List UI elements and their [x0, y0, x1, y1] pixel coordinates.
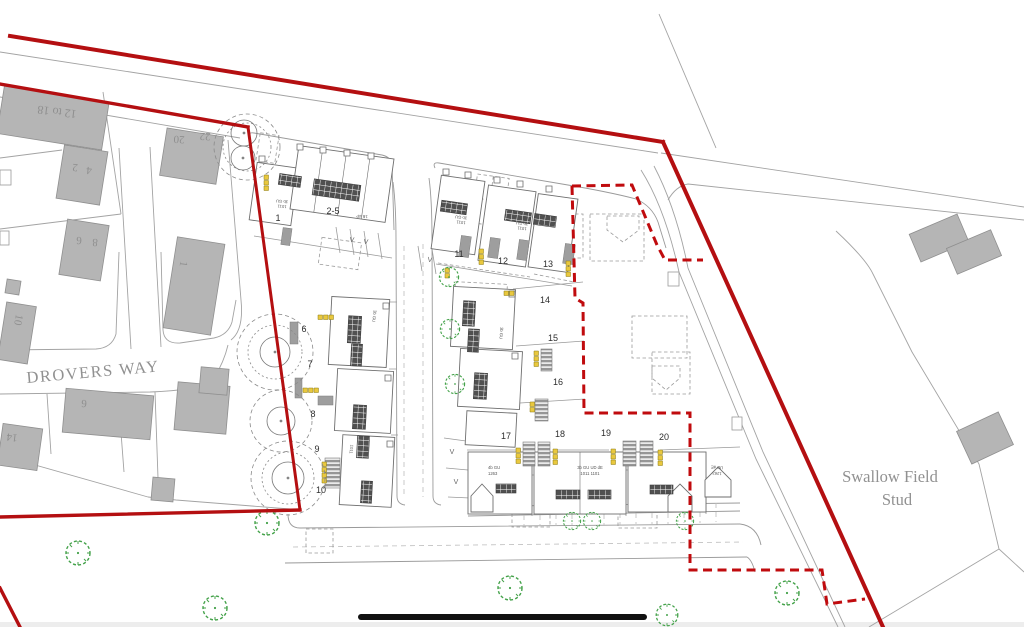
unit-type-note-20: UD dE: [711, 465, 724, 471]
plot-label-11: 11: [454, 249, 463, 259]
plot-label-19: 19: [601, 428, 611, 438]
house-plot-14: [450, 286, 515, 349]
plot-label-6: 6: [301, 324, 306, 334]
plot-label-1: 1: [275, 213, 280, 223]
building-14: [0, 423, 43, 470]
unit-ref-note-20: 1263: [712, 471, 722, 477]
plot-label-15: 15: [548, 333, 558, 343]
plot-label-8: 8: [310, 409, 315, 419]
unit-ref-note-18-19: 1011 1101: [580, 471, 600, 476]
unit-type-note-18-19: 3b GU UD dE: [577, 465, 603, 470]
plot-label-14: 14: [540, 295, 550, 305]
existing-number-2: 2: [72, 161, 79, 173]
unit-note-vertical: 1011: [348, 444, 354, 454]
plot-label-18: 18: [555, 429, 565, 439]
visitor-space-label: V: [450, 449, 455, 456]
plot-label-9: 9: [314, 444, 319, 454]
plot-label-10: 10: [316, 485, 326, 495]
building-22-20: [160, 128, 224, 184]
site-plan-drawing: DROVERS WAY Swallow Field Stud 12 to 18 …: [0, 0, 1024, 627]
existing-number-22: 22: [199, 130, 211, 143]
site-plan-svg: DROVERS WAY Swallow Field Stud 12 to 18 …: [0, 0, 1024, 627]
plot-label-7: 7: [307, 359, 312, 369]
unit-ref-note: 1011: [456, 219, 466, 225]
plot-label-16: 16: [553, 377, 563, 387]
unit-type-note: 3b GU: [276, 199, 288, 205]
unit-ref-note: 1011: [517, 225, 527, 231]
visitor-space-label: V: [454, 479, 459, 486]
plot-label-12: 12: [498, 256, 508, 266]
existing-number-20: 20: [173, 133, 185, 146]
area-label-stud: Stud: [882, 490, 913, 509]
existing-number-14: 14: [5, 430, 18, 443]
plot-label-17: 17: [501, 431, 511, 441]
building-2-4: [56, 145, 108, 205]
plot-label-20: 20: [659, 432, 669, 442]
unit-type-note-17: 4b GU: [488, 465, 500, 470]
building-6-8: [59, 219, 109, 281]
plot-label-2-5: 2-5: [326, 206, 339, 216]
plot-label-13: 13: [543, 259, 553, 269]
area-label-swallow-field: Swallow Field: [842, 467, 939, 486]
unit-ref-note-17: 1263: [488, 471, 498, 476]
building-6-south: [62, 388, 153, 440]
unit-type-note: 1B 4P: [356, 214, 368, 220]
unit-note-vertical: 3b GU: [499, 327, 505, 339]
unit-ref-note: 1011: [277, 204, 287, 210]
house-plot-16: [465, 411, 517, 448]
